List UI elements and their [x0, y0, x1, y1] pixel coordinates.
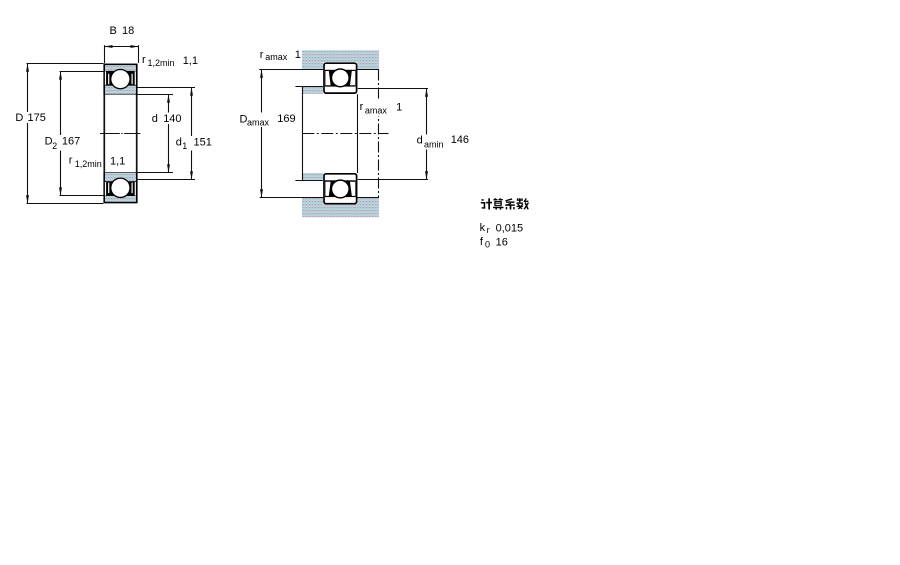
- svg-text:1,1: 1,1: [110, 155, 125, 167]
- svg-text:1,2min: 1,2min: [148, 58, 175, 68]
- svg-text:r: r: [260, 49, 264, 61]
- svg-text:r: r: [360, 101, 364, 113]
- svg-text:amax: amax: [247, 117, 270, 127]
- svg-text:r: r: [142, 54, 146, 66]
- svg-text:1: 1: [396, 102, 402, 114]
- svg-text:2: 2: [52, 141, 57, 151]
- svg-text:140: 140: [163, 113, 181, 125]
- svg-text:1: 1: [182, 141, 187, 151]
- svg-text:0,015: 0,015: [496, 222, 524, 234]
- svg-text:146: 146: [451, 134, 469, 146]
- svg-text:k: k: [480, 222, 486, 234]
- svg-text:1,1: 1,1: [183, 55, 198, 67]
- svg-text:amax: amax: [365, 106, 388, 116]
- svg-text:167: 167: [62, 135, 80, 147]
- svg-text:1,2min: 1,2min: [75, 159, 102, 169]
- svg-text:151: 151: [194, 136, 212, 148]
- svg-text:D: D: [15, 112, 23, 124]
- svg-text:175: 175: [28, 112, 46, 124]
- svg-text:16: 16: [496, 236, 508, 248]
- svg-text:1: 1: [295, 49, 301, 61]
- svg-text:amin: amin: [424, 139, 444, 149]
- svg-text:B: B: [110, 25, 117, 37]
- svg-text:169: 169: [277, 113, 295, 125]
- svg-text:18: 18: [122, 25, 134, 37]
- svg-text:d: d: [417, 134, 423, 146]
- svg-text:d: d: [176, 137, 182, 149]
- svg-text:r: r: [69, 154, 73, 166]
- svg-text:d: d: [152, 113, 158, 125]
- svg-text:0: 0: [485, 240, 490, 250]
- svg-text:r: r: [487, 225, 490, 235]
- svg-text:amax: amax: [265, 52, 288, 62]
